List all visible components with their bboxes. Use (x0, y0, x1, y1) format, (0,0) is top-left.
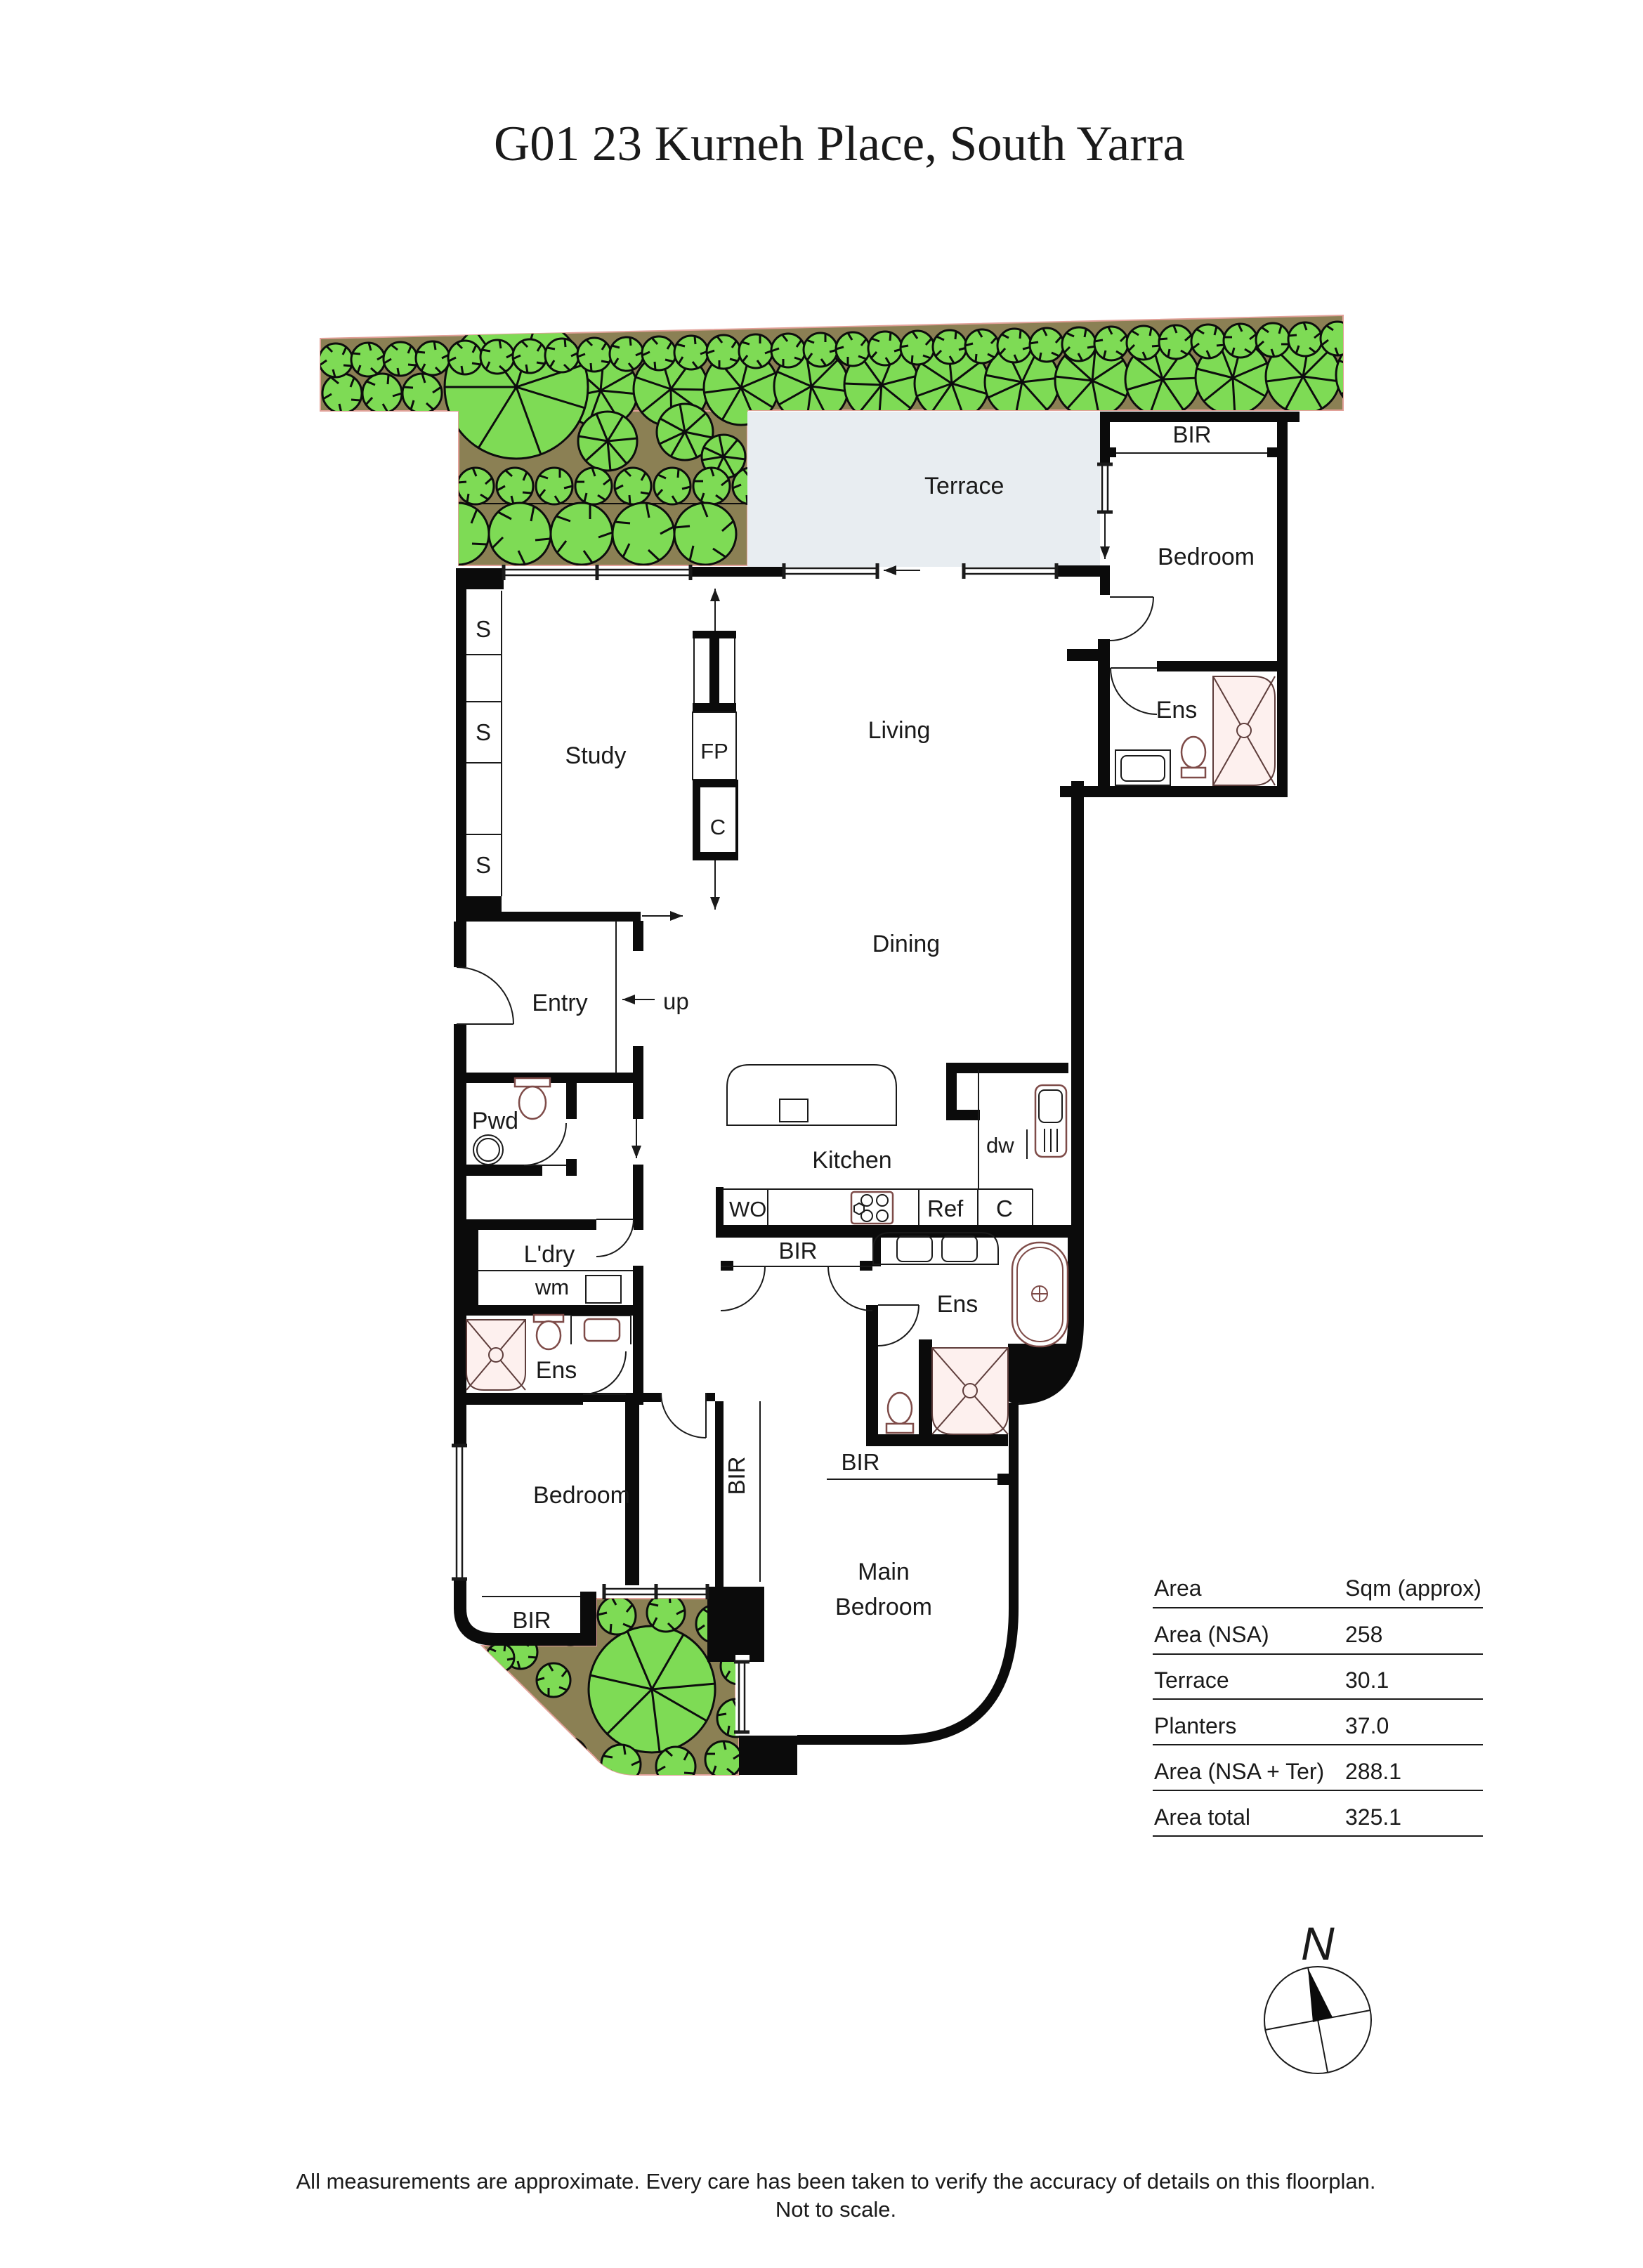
svg-text:up: up (663, 988, 689, 1014)
svg-text:WO: WO (729, 1197, 766, 1221)
svg-text:Bedroom: Bedroom (533, 1482, 630, 1509)
svg-text:Planters: Planters (1154, 1713, 1236, 1738)
svg-text:G01 23 Kurneh Place, South Yar: G01 23 Kurneh Place, South Yarra (494, 117, 1185, 171)
svg-text:BIR: BIR (778, 1238, 817, 1264)
svg-text:Ens: Ens (1156, 697, 1198, 723)
svg-text:Not to scale.: Not to scale. (775, 2197, 896, 2222)
svg-text:wm: wm (535, 1275, 569, 1299)
svg-text:Entry: Entry (532, 990, 587, 1016)
svg-text:Study: Study (565, 742, 627, 769)
svg-text:S: S (476, 616, 491, 642)
svg-text:Sqm (approx): Sqm (approx) (1345, 1575, 1481, 1601)
svg-text:S: S (476, 719, 491, 745)
svg-text:Bedroom: Bedroom (1158, 544, 1255, 570)
svg-text:C: C (710, 815, 726, 839)
svg-text:Bedroom: Bedroom (835, 1594, 932, 1620)
svg-text:S: S (476, 852, 491, 878)
svg-text:C: C (996, 1195, 1013, 1221)
svg-text:Ens: Ens (536, 1357, 577, 1384)
svg-text:FP: FP (700, 739, 728, 763)
svg-text:Area (NSA + Ter): Area (NSA + Ter) (1154, 1759, 1324, 1784)
svg-text:Terrace: Terrace (1154, 1667, 1229, 1693)
svg-text:BIR: BIR (512, 1607, 551, 1633)
svg-text:BIR: BIR (724, 1456, 750, 1495)
svg-text:Dining: Dining (872, 931, 940, 957)
svg-text:L'dry: L'dry (524, 1241, 575, 1268)
svg-text:Kitchen: Kitchen (812, 1147, 891, 1174)
svg-text:dw: dw (986, 1133, 1014, 1158)
svg-text:37.0: 37.0 (1345, 1713, 1389, 1738)
svg-text:288.1: 288.1 (1345, 1759, 1401, 1784)
svg-text:BIR: BIR (1172, 421, 1211, 447)
svg-text:30.1: 30.1 (1345, 1667, 1389, 1693)
svg-text:N: N (1301, 1918, 1335, 1969)
svg-text:All measurements are approxima: All measurements are approximate. Every … (296, 2169, 1376, 2194)
svg-text:Area total: Area total (1154, 1804, 1250, 1830)
svg-text:325.1: 325.1 (1345, 1804, 1401, 1830)
svg-text:Pwd: Pwd (472, 1108, 518, 1134)
svg-text:Ens: Ens (937, 1291, 978, 1318)
svg-text:Terrace: Terrace (924, 473, 1004, 499)
svg-text:Area: Area (1154, 1575, 1202, 1601)
svg-text:Main: Main (858, 1559, 910, 1585)
svg-text:Ref: Ref (927, 1195, 964, 1221)
svg-text:Living: Living (868, 717, 931, 744)
svg-text:258: 258 (1345, 1622, 1382, 1647)
svg-text:Area (NSA): Area (NSA) (1154, 1622, 1269, 1647)
svg-text:BIR: BIR (841, 1449, 879, 1475)
